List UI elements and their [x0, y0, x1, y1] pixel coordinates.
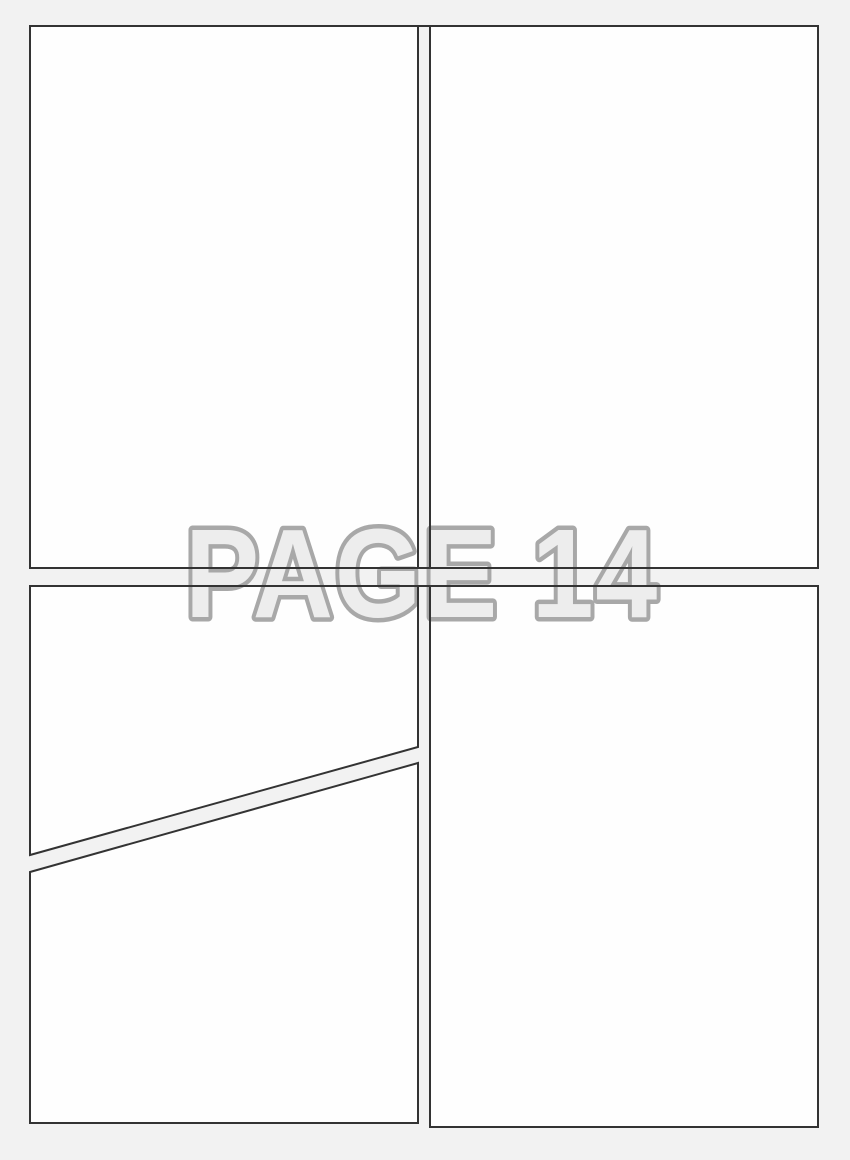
panel-bottom-right-fill [430, 586, 818, 1127]
comic-page-template: PAGE 14 [0, 0, 850, 1160]
page-canvas: PAGE 14 [0, 0, 850, 1160]
panel-top-right-fill [430, 26, 818, 568]
panel-top-left-fill [30, 26, 418, 568]
page-number-watermark: PAGE 14 [185, 503, 659, 644]
